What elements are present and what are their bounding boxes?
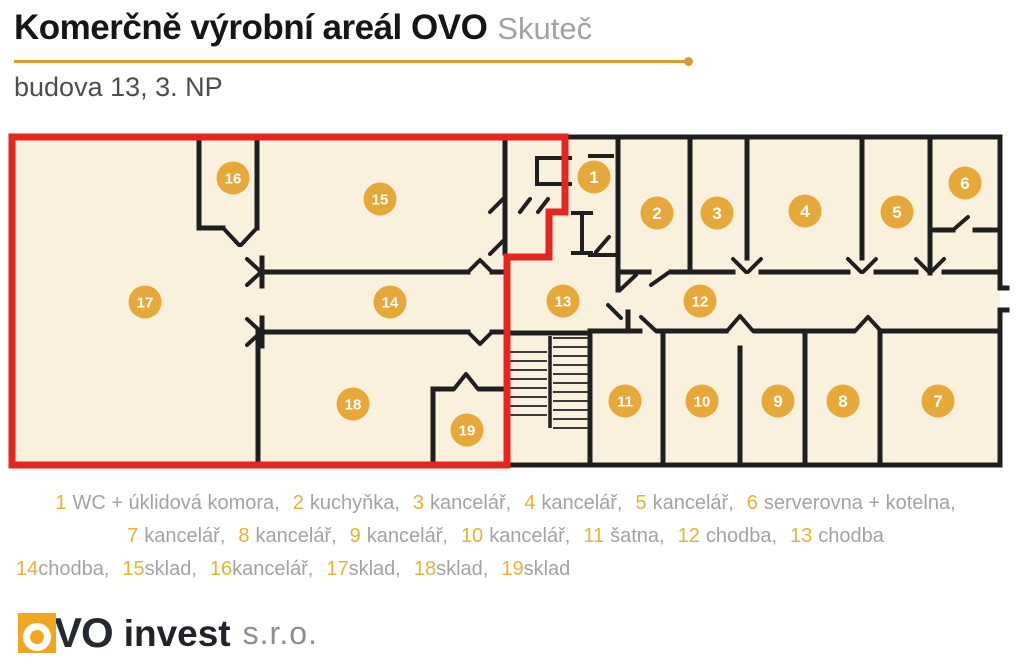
room-badge-number: 13	[555, 293, 572, 310]
brand-vo: VO	[54, 612, 113, 654]
legend-item-2: 2kuchyňka,	[293, 492, 400, 514]
legend-item-19: 19sklad	[501, 558, 570, 580]
legend: 1WC + úklidová komora,2kuchyňka,3kancelá…	[0, 487, 1024, 586]
room-badge-number: 14	[382, 294, 399, 311]
legend-line: 1WC + úklidová komora,2kuchyňka,3kancelá…	[0, 487, 1024, 520]
legend-item-5: 5kancelář,	[635, 492, 733, 514]
legend-item-16: 16kancelář,	[210, 558, 313, 580]
legend-item-label: WC + úklidová komora,	[72, 492, 279, 514]
legend-item-label: kancelář,	[541, 492, 622, 514]
legend-item-8: 8kancelář,	[238, 525, 336, 547]
room-badge-number: 5	[892, 203, 901, 222]
room-badge-number: 19	[459, 422, 476, 439]
room-badge-number: 9	[773, 392, 782, 411]
legend-item-number: 2	[293, 492, 304, 514]
room-badge-number: 8	[838, 392, 847, 411]
room-badge-number: 16	[225, 170, 242, 187]
room-badge-number: 1	[589, 168, 598, 187]
legend-item-label: šatna,	[610, 525, 664, 547]
page: Komerčně výrobní areál OVOSkuteč budova …	[0, 0, 1024, 666]
room-badge-number: 17	[137, 294, 154, 311]
legend-item-6: 6serverovna + kotelna,	[747, 492, 956, 514]
legend-item-label: kancelář,	[367, 525, 448, 547]
legend-item-13: 13chodba	[790, 525, 884, 547]
legend-item-number: 7	[127, 525, 138, 547]
room-badge-number: 3	[712, 204, 721, 223]
legend-item-number: 5	[635, 492, 646, 514]
room-badge-number: 7	[933, 392, 942, 411]
legend-item-number: 17	[326, 558, 348, 580]
legend-item-label: sklad	[524, 558, 571, 580]
legend-item-label: chodba,	[706, 525, 777, 547]
legend-item-1: 1WC + úklidová komora,	[55, 492, 279, 514]
legend-item-label: kancelář,	[144, 525, 225, 547]
legend-item-18: 18sklad,	[414, 558, 489, 580]
legend-item-label: kancelář,	[256, 525, 337, 547]
footer-brand: VO invest s.r.o.	[18, 611, 318, 655]
legend-item-label: sklad,	[349, 558, 401, 580]
legend-item-label: serverovna + kotelna,	[764, 492, 956, 514]
legend-item-10: 10kancelář,	[461, 525, 570, 547]
legend-item-label: kancelář,	[653, 492, 734, 514]
legend-item-15: 15sklad,	[122, 558, 197, 580]
legend-item-number: 14	[16, 558, 38, 580]
legend-item-number: 12	[678, 525, 700, 547]
legend-item-label: sklad,	[436, 558, 488, 580]
brand-o-icon	[18, 613, 56, 653]
room-badge-number: 6	[960, 174, 969, 193]
room-badge-number: 11	[617, 393, 633, 410]
legend-item-number: 13	[790, 525, 812, 547]
brand-suffix: s.r.o.	[243, 617, 318, 649]
legend-item-number: 1	[55, 492, 66, 514]
legend-item-number: 18	[414, 558, 436, 580]
legend-item-number: 3	[413, 492, 424, 514]
legend-item-label: chodba	[818, 525, 884, 547]
legend-item-label: kancelář,	[489, 525, 570, 547]
room-badge-number: 12	[692, 293, 709, 310]
legend-item-label: kuchyňka,	[310, 492, 400, 514]
legend-item-number: 10	[461, 525, 483, 547]
legend-line: 7kancelář,8kancelář,9kancelář,10kancelář…	[0, 520, 1024, 553]
legend-item-label: kancelář,	[430, 492, 511, 514]
legend-item-14: 14chodba,	[16, 558, 109, 580]
room-badge-number: 15	[372, 191, 389, 208]
legend-line: 14chodba,15sklad,16kancelář,17sklad,18sk…	[0, 553, 1024, 586]
legend-item-11: 11šatna,	[583, 525, 664, 547]
room-badge-number: 4	[800, 202, 810, 221]
legend-item-number: 8	[238, 525, 249, 547]
legend-item-17: 17sklad,	[326, 558, 401, 580]
legend-item-number: 19	[501, 558, 523, 580]
brand-invest: invest	[124, 615, 231, 652]
legend-item-number: 4	[524, 492, 535, 514]
room-badge-number: 2	[652, 204, 661, 223]
legend-item-9: 9kancelář,	[350, 525, 448, 547]
legend-item-number: 16	[210, 558, 232, 580]
room-badge-number: 18	[345, 396, 362, 413]
legend-item-12: 12chodba,	[678, 525, 777, 547]
legend-item-number: 15	[122, 558, 144, 580]
legend-item-number: 9	[350, 525, 361, 547]
room-badge-number: 10	[694, 393, 711, 410]
legend-item-number: 11	[583, 525, 604, 547]
legend-item-label: sklad,	[145, 558, 197, 580]
legend-item-label: kancelář,	[232, 558, 313, 580]
legend-item-3: 3kancelář,	[413, 492, 511, 514]
legend-item-4: 4kancelář,	[524, 492, 622, 514]
legend-item-label: chodba,	[38, 558, 109, 580]
legend-item-7: 7kancelář,	[127, 525, 225, 547]
legend-item-number: 6	[747, 492, 758, 514]
